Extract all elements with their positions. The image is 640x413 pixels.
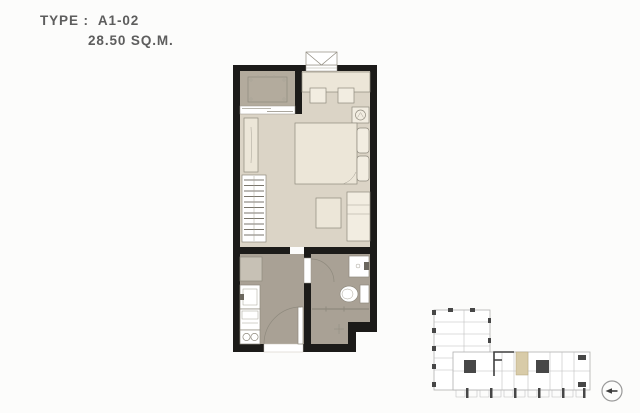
stool-right — [338, 88, 354, 103]
bathroom-faucet — [364, 262, 369, 270]
type-label: TYPE : — [40, 13, 89, 28]
building-key-plan — [428, 300, 598, 408]
ac-ledge-window — [306, 52, 337, 65]
bath-wall-lower — [304, 283, 311, 344]
highlighted-unit — [516, 352, 528, 375]
kitchen-counter — [240, 309, 260, 330]
left-wall — [233, 65, 240, 352]
pillow-bottom — [357, 156, 369, 181]
bottom-wall-left — [233, 344, 264, 352]
toilet-bowl — [340, 286, 358, 302]
refrigerator — [240, 257, 262, 281]
unit-code: A1-02 — [98, 13, 139, 28]
toilet-tank — [360, 285, 369, 303]
stool-left — [310, 88, 326, 103]
mid-wall-left — [233, 247, 290, 254]
bottom-wall-right — [303, 344, 356, 352]
sink-faucet — [240, 294, 244, 300]
pillow-top — [357, 128, 369, 153]
bathroom-door-leaf — [304, 258, 311, 283]
elevator-core-left — [464, 360, 476, 373]
entrance-door-leaf — [298, 307, 303, 344]
double-bed — [295, 123, 357, 184]
right-wall — [370, 65, 377, 332]
title-block: TYPE : A1-02 28.50 SQ.M. — [40, 13, 174, 48]
unit-floor-plan — [222, 45, 387, 360]
tv-cabinet — [347, 192, 370, 241]
north-arrow-icon — [606, 388, 618, 393]
entrance-threshold — [264, 344, 303, 352]
balcony-stub-wall — [295, 65, 302, 114]
bath-wall-upper — [304, 254, 311, 258]
side-table — [316, 198, 341, 228]
fan-coil-box — [352, 107, 369, 123]
top-wall — [233, 65, 377, 71]
mirror-panel — [244, 118, 258, 172]
sliding-glass-door — [240, 106, 295, 114]
unit-area: 28.50 SQ.M. — [88, 33, 174, 48]
north-indicator — [600, 379, 624, 403]
mid-wall-right — [304, 247, 377, 254]
key-plan-lower-wing — [453, 352, 590, 398]
elevator-core-right — [536, 360, 549, 373]
